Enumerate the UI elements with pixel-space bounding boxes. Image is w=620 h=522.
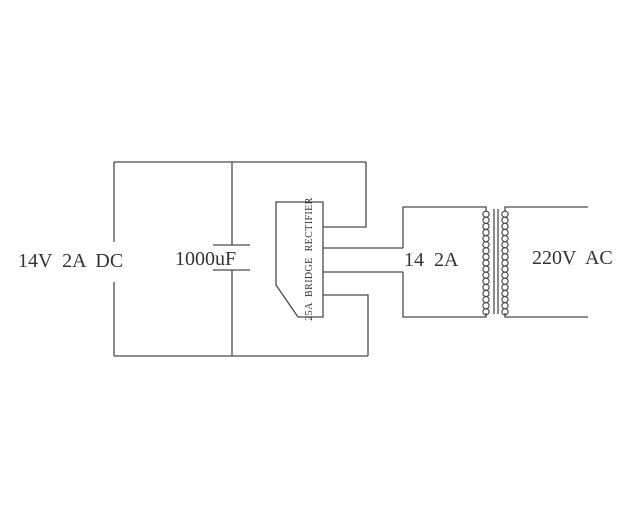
ac-top-lead [505, 207, 588, 211]
transformer-secondary-label: 14 2A [404, 249, 459, 271]
bridge-rectifier-label: 25A BRIDGE RECTIFIER [304, 197, 315, 320]
dc-output-label: 14V 2A DC [18, 250, 123, 272]
secondary-top-wire [403, 207, 486, 248]
schematic-canvas: 25A BRIDGE RECTIFIER 14V 2A DC 1000uF 14… [0, 0, 620, 522]
capacitor-label: 1000uF [175, 248, 236, 270]
transformer-secondary-coil [483, 211, 489, 315]
rectifier-dc-minus-wire [323, 295, 368, 356]
bridge-rectifier: 25A BRIDGE RECTIFIER [276, 197, 403, 320]
dc-output-loop [114, 162, 368, 356]
circuit-schematic: 25A BRIDGE RECTIFIER 14V 2A DC 1000uF 14… [0, 0, 620, 522]
secondary-bottom-wire [403, 272, 486, 317]
ac-bottom-lead [505, 313, 588, 317]
transformer-primary-coil [502, 211, 508, 315]
transformer [483, 209, 508, 315]
bridge-rectifier-body [276, 202, 323, 317]
rectifier-dc-plus-wire [323, 162, 366, 227]
ac-input-label: 220V AC [532, 247, 613, 269]
